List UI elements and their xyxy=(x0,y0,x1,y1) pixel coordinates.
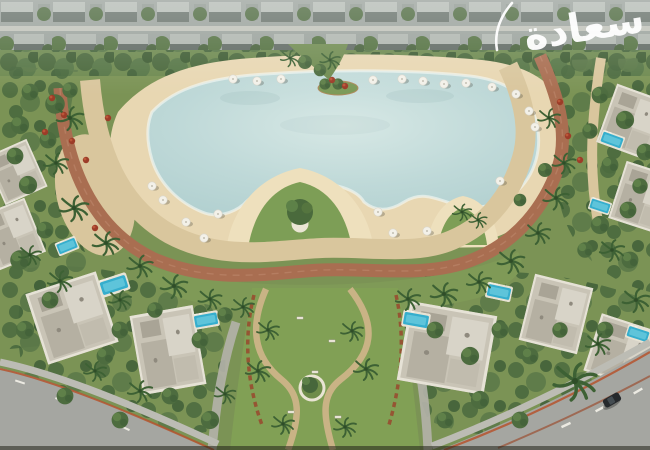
bench xyxy=(335,416,341,418)
tree xyxy=(620,202,637,219)
tree xyxy=(471,391,489,409)
flower xyxy=(557,99,563,105)
peninsula-tree-highlight xyxy=(286,200,298,212)
tree xyxy=(552,322,567,337)
peninsula-tree-highlight xyxy=(302,203,313,214)
tree xyxy=(11,116,29,134)
tree xyxy=(591,216,609,234)
tree xyxy=(512,412,529,429)
tree xyxy=(147,302,162,317)
tree xyxy=(492,322,509,339)
flower xyxy=(83,157,89,163)
tree xyxy=(40,132,57,149)
flower xyxy=(49,95,55,101)
tree xyxy=(201,411,219,429)
flower xyxy=(69,138,75,144)
tree xyxy=(461,347,479,365)
tree xyxy=(522,348,539,365)
flower xyxy=(105,115,111,121)
scene-canvas: سعادة xyxy=(0,0,650,450)
tree xyxy=(577,242,592,257)
flower xyxy=(92,225,98,231)
tree xyxy=(622,252,639,269)
aerial-render-lagoon-community: سعادة xyxy=(0,0,650,450)
water-reflection xyxy=(280,115,390,135)
tree xyxy=(427,322,444,339)
tree xyxy=(112,322,129,339)
flower xyxy=(565,133,571,139)
tree xyxy=(57,388,74,405)
tree xyxy=(538,163,552,177)
tree xyxy=(632,178,647,193)
bench xyxy=(288,411,294,413)
tree xyxy=(97,348,114,365)
tree xyxy=(42,292,59,309)
tree xyxy=(19,176,37,194)
tree xyxy=(616,111,634,129)
bench xyxy=(329,340,335,342)
tree xyxy=(162,388,179,405)
tree xyxy=(437,412,454,429)
flower xyxy=(577,157,583,163)
flower xyxy=(61,112,67,118)
tree xyxy=(582,123,597,138)
tree xyxy=(602,157,619,174)
tree xyxy=(7,148,24,165)
tree xyxy=(514,194,527,207)
tree xyxy=(112,412,129,429)
tree xyxy=(217,307,232,322)
flower xyxy=(42,129,48,135)
tree xyxy=(37,222,54,239)
tree xyxy=(192,332,209,349)
bottom-edge-shadow xyxy=(0,446,650,450)
bench xyxy=(297,317,303,319)
bench xyxy=(312,371,318,373)
tree xyxy=(16,321,34,339)
roundabout-tree-highlight xyxy=(302,377,310,385)
